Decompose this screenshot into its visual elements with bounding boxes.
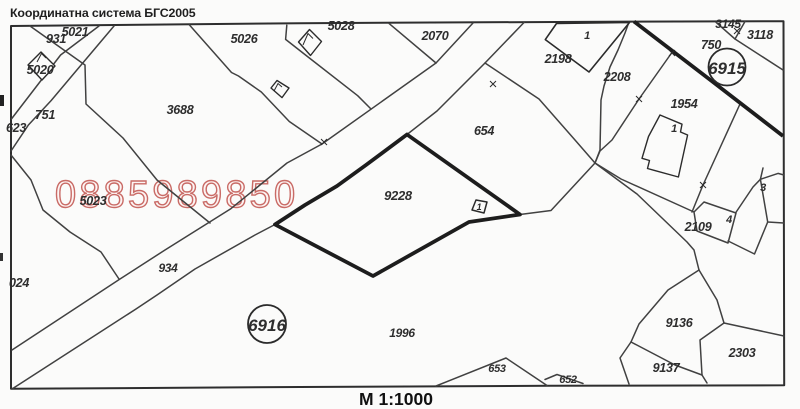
svg-text:9228: 9228 (384, 188, 413, 203)
svg-text:931: 931 (46, 32, 66, 46)
svg-text:934: 934 (158, 261, 178, 275)
svg-text:2109: 2109 (684, 220, 712, 234)
svg-text:750: 750 (701, 38, 721, 52)
svg-text:654: 654 (474, 124, 494, 138)
svg-text:3118: 3118 (747, 28, 773, 42)
svg-text:2198: 2198 (544, 52, 572, 66)
svg-text:623: 623 (6, 121, 26, 135)
svg-text:1: 1 (671, 123, 677, 135)
svg-text:4: 4 (725, 214, 732, 226)
svg-text:3688: 3688 (167, 103, 194, 117)
svg-text:1: 1 (584, 30, 590, 42)
svg-text:Координатна система БГС2005: Координатна система БГС2005 (10, 6, 196, 20)
svg-text:5026: 5026 (231, 32, 259, 46)
svg-text:М 1:1000: М 1:1000 (359, 389, 433, 409)
svg-text:3145: 3145 (715, 17, 741, 31)
svg-text:9136: 9136 (666, 316, 694, 330)
svg-text:652: 652 (559, 374, 577, 386)
svg-text:1954: 1954 (671, 97, 698, 111)
svg-text:6915: 6915 (708, 59, 746, 78)
svg-text:6916: 6916 (248, 316, 286, 335)
svg-text:653: 653 (488, 363, 506, 375)
svg-text:2070: 2070 (421, 29, 449, 43)
svg-text:1: 1 (477, 202, 482, 212)
svg-text:2208: 2208 (603, 70, 631, 84)
svg-text:9137: 9137 (653, 361, 681, 375)
svg-text:3: 3 (760, 182, 766, 194)
svg-text:5023: 5023 (80, 194, 107, 208)
svg-text:1996: 1996 (389, 326, 415, 340)
svg-text:5020: 5020 (27, 63, 54, 77)
svg-text:5028: 5028 (328, 19, 355, 33)
svg-text:024: 024 (9, 276, 29, 290)
svg-text:2303: 2303 (728, 346, 756, 360)
svg-text:751: 751 (35, 108, 55, 122)
